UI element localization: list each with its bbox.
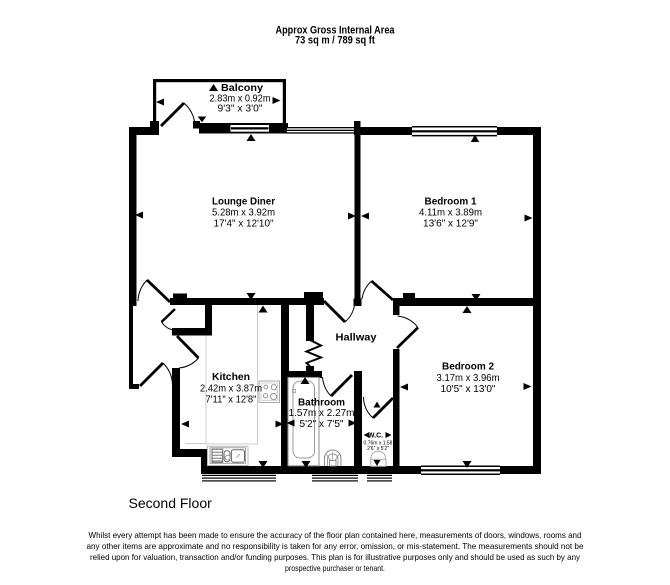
svg-text:Whilst every attempt has been: Whilst every attempt has been made to en… xyxy=(89,530,582,540)
svg-text:Second Floor: Second Floor xyxy=(129,495,213,511)
svg-text:9'3" x 3'0": 9'3" x 3'0" xyxy=(218,103,263,115)
svg-text:5'2" x 7'5": 5'2" x 7'5" xyxy=(300,418,344,430)
svg-text:Hallway: Hallway xyxy=(336,332,377,344)
svg-text:73 sq m / 789 sq ft: 73 sq m / 789 sq ft xyxy=(295,35,375,47)
svg-text:any other items are approximat: any other items are approximate and no r… xyxy=(87,541,584,551)
svg-text:10'5" x 13'0": 10'5" x 13'0" xyxy=(441,383,496,395)
svg-text:17'4" x 12'10": 17'4" x 12'10" xyxy=(214,218,274,230)
svg-text:3.17m x 3.96m: 3.17m x 3.96m xyxy=(437,372,500,384)
svg-text:Kitchen: Kitchen xyxy=(212,371,250,383)
svg-text:7'11" x 12'8": 7'11" x 12'8" xyxy=(206,394,257,406)
svg-text:Bedroom 2: Bedroom 2 xyxy=(442,361,494,373)
svg-text:W.C.: W.C. xyxy=(368,433,383,440)
svg-text:relied upon for valuation, tra: relied upon for valuation, transaction a… xyxy=(90,552,581,562)
svg-text:2'6" x 5'2": 2'6" x 5'2" xyxy=(367,446,389,452)
svg-text:13'6" x 12'9": 13'6" x 12'9" xyxy=(423,218,478,230)
svg-text:prospective purchaser or tenan: prospective purchaser or tenant. xyxy=(285,563,385,573)
